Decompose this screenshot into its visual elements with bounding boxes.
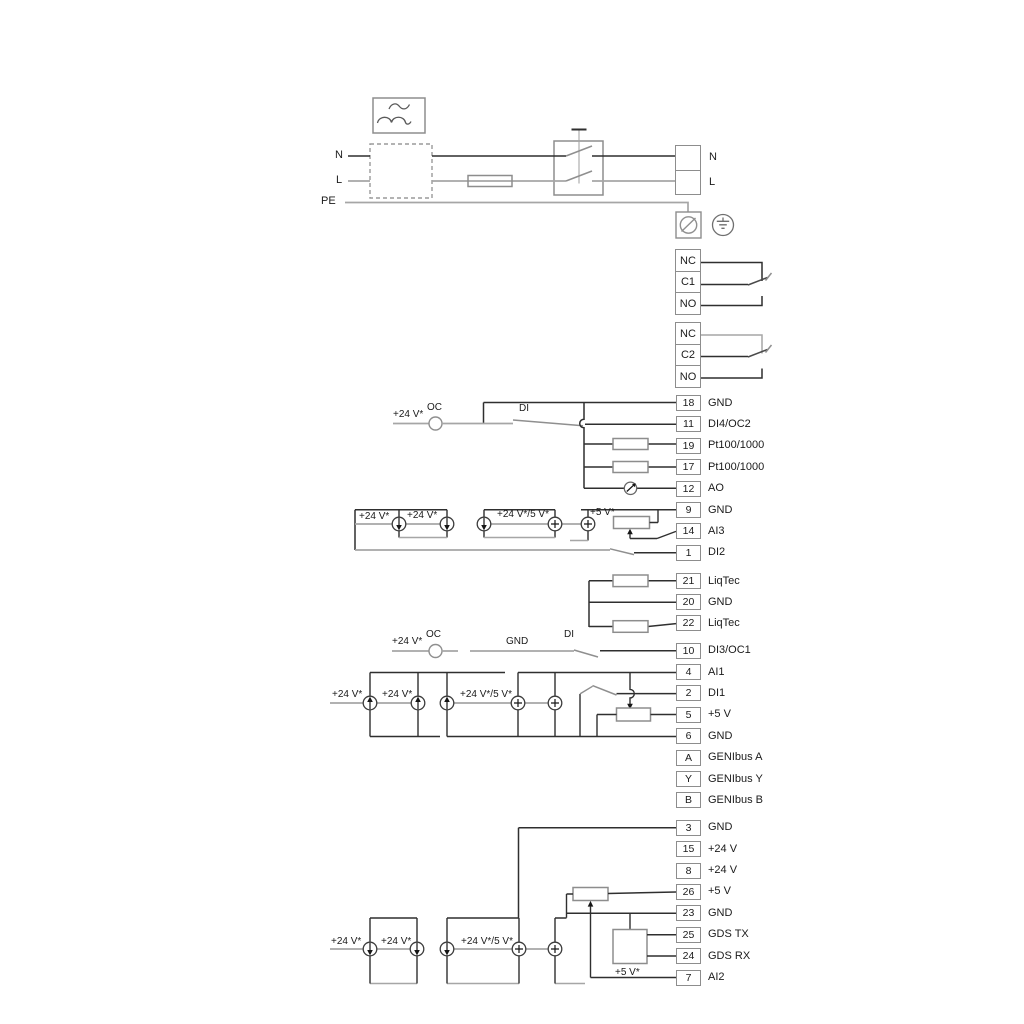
mains-terminal-box	[675, 145, 701, 195]
oc-label: OC	[427, 402, 442, 413]
terminal-label-4: AI1	[708, 666, 725, 679]
terminal-label-18: GND	[708, 397, 732, 410]
terminal-cell-1: 1	[676, 545, 701, 561]
pot3-right	[608, 892, 676, 894]
relay1-cell-nc: NC	[675, 249, 701, 272]
di-label: DI	[564, 629, 574, 640]
dashed-filter-box	[370, 144, 432, 198]
v24-label: +24 V*	[381, 936, 411, 947]
terminal-label-2: DI1	[708, 687, 725, 700]
oc1-open-collector-icon	[429, 645, 442, 658]
liqtec21-sensor	[613, 575, 648, 587]
row3-verticals	[370, 918, 555, 984]
v24-5-label: +24 V*/5 V*	[460, 689, 512, 700]
v24-5-label: +24 V*/5 V*	[497, 509, 549, 520]
pt100-17-resistor	[613, 462, 648, 473]
relay2-cell-no: NO	[675, 365, 701, 388]
relay1-cell-no: NO	[675, 292, 701, 315]
terminal-cell-11: 11	[676, 416, 701, 432]
v5-label: +5 V*	[615, 967, 640, 978]
sensor-bus	[580, 403, 584, 489]
pot1-wiper-arrow	[627, 529, 633, 535]
earth-bars	[717, 218, 729, 229]
relay1-tick	[766, 273, 772, 281]
v24-label: +24 V*	[359, 511, 389, 522]
terminal-label-10: DI3/OC1	[708, 644, 751, 657]
terminal-cell-12: 12	[676, 481, 701, 497]
terminal-cell-8: 8	[676, 863, 701, 879]
terminal-label-12: AO	[708, 482, 724, 495]
pot2-left	[597, 715, 617, 737]
terminal-label-9: GND	[708, 504, 732, 517]
gnd-label: GND	[506, 636, 528, 647]
relay2-nc-wire	[701, 335, 762, 354]
terminal-label-22: LiqTec	[708, 617, 740, 630]
l-right-label: L	[709, 176, 715, 188]
pt100-19-resistor	[613, 439, 648, 450]
wave-box	[373, 98, 425, 133]
terminal-cell-5: 5	[676, 707, 701, 723]
liqtec-block	[589, 575, 676, 632]
sine-wave-icon	[389, 104, 410, 109]
terminal-cell-4: 4	[676, 664, 701, 680]
relay1-no-text: NO	[680, 298, 697, 310]
di1-switch-blade	[593, 686, 617, 695]
terminal-cell-2: 2	[676, 685, 701, 701]
sensor-row-ai2	[330, 828, 676, 984]
terminal-label-24: GDS RX	[708, 950, 750, 963]
terminal-cell-Y: Y	[676, 771, 701, 787]
terminal-cell-7: 7	[676, 970, 701, 986]
pot3-wiper-arrow	[588, 901, 594, 907]
v24-label: +24 V*	[382, 689, 412, 700]
terminal-label-19: Pt100/1000	[708, 439, 764, 452]
di4-switch-blade	[513, 420, 583, 426]
liqtec22-wires	[589, 624, 676, 627]
pe-left-label: PE	[321, 195, 336, 207]
wiring-diagram: N L PE N L NC C1 NO NC C2 NO 18 GND 11 D…	[0, 0, 1024, 1024]
v24-label: +24 V*	[392, 636, 422, 647]
relay1-cell-c1: C1	[675, 271, 701, 294]
terminal-cell-20: 20	[676, 594, 701, 610]
relay2-no-wire	[701, 369, 762, 379]
relay2-c2-text: C2	[681, 349, 695, 361]
v24-label: +24 V*	[407, 510, 437, 521]
di-label: DI	[519, 403, 529, 414]
terminal-cell-B: B	[676, 792, 701, 808]
v24-5-label: +24 V*/5 V*	[461, 936, 513, 947]
relay1-blade	[748, 278, 768, 286]
terminal-cell-23: 23	[676, 905, 701, 921]
n-right-label: N	[709, 151, 717, 163]
terminal-cell-15: 15	[676, 841, 701, 857]
relay1-no-wire	[701, 296, 762, 306]
pe-wire	[345, 203, 688, 213]
terminal-label-21: LiqTec	[708, 575, 740, 588]
potentiometer-ai3	[614, 517, 650, 529]
terminal-label-5: +5 V	[708, 708, 731, 721]
relay2-cell-nc: NC	[675, 322, 701, 345]
terminal-cell-18: 18	[676, 395, 701, 411]
terminal-label-6: GND	[708, 730, 732, 743]
gds-sensor-box	[613, 930, 647, 964]
terminal-cell-17: 17	[676, 459, 701, 475]
pot1-wiper-wire	[630, 531, 676, 538]
row2-verticals	[370, 673, 555, 737]
mains-box-divider	[676, 170, 700, 171]
terminal-cell-26: 26	[676, 884, 701, 900]
terminal-label-Y: GENIbus Y	[708, 773, 763, 786]
relay2-cell-c2: C2	[675, 344, 701, 367]
liqtec22-sensor	[613, 621, 648, 633]
terminal-cell-25: 25	[676, 927, 701, 943]
terminal-label-A: GENIbus A	[708, 751, 762, 764]
terminal-label-8: +24 V	[708, 864, 737, 877]
v24-label: +24 V*	[331, 936, 361, 947]
relay2-contacts	[701, 335, 772, 378]
terminal-label-7: AI2	[708, 971, 725, 984]
n-left-label: N	[335, 149, 343, 161]
terminal-label-14: AI3	[708, 525, 725, 538]
terminal-cell-21: 21	[676, 573, 701, 589]
terminal-cell-A: A	[676, 750, 701, 766]
v24-label: +24 V*	[393, 409, 423, 420]
di1-hinge	[580, 686, 593, 694]
terminal-cell-22: 22	[676, 615, 701, 631]
relay1-nc-wire	[701, 263, 762, 282]
terminal-label-26: +5 V	[708, 885, 731, 898]
terminal-cell-10: 10	[676, 643, 701, 659]
di4-pt100-ao-block	[393, 403, 676, 495]
di3-row	[392, 645, 676, 658]
terminal-cell-6: 6	[676, 728, 701, 744]
terminal-label-17: Pt100/1000	[708, 461, 764, 474]
di3-switch-blade	[574, 650, 598, 657]
terminal-label-25: GDS TX	[708, 928, 749, 941]
relay2-tick	[766, 345, 772, 353]
oc2-open-collector-icon	[429, 417, 442, 430]
gnd3-wire	[519, 828, 677, 918]
terminal-cell-14: 14	[676, 523, 701, 539]
gds-tx-rx-wires	[647, 935, 676, 956]
potentiometer-ai2	[573, 888, 608, 901]
di2-switch-blade	[610, 549, 634, 555]
pot2-wiper-drop	[630, 673, 634, 705]
terminal-cell-19: 19	[676, 438, 701, 454]
relay2-nc-text: NC	[680, 328, 696, 340]
terminal-label-15: +24 V	[708, 843, 737, 856]
terminal-label-3: GND	[708, 821, 732, 834]
terminal-label-1: DI2	[708, 546, 725, 559]
hump-wave-icon	[378, 117, 412, 124]
terminal-label-B: GENIbus B	[708, 794, 763, 807]
terminal-label-20: GND	[708, 596, 732, 609]
relay1-c1-text: C1	[681, 276, 695, 288]
v24-label: +24 V*	[332, 689, 362, 700]
relay2-no-text: NO	[680, 371, 697, 383]
pot1-right	[650, 510, 659, 523]
terminal-label-11: DI4/OC2	[708, 418, 751, 431]
sensor-row-ai1	[330, 673, 676, 737]
v5-label: +5 V*	[590, 507, 615, 518]
relay1-nc-text: NC	[680, 255, 696, 267]
terminal-cell-24: 24	[676, 948, 701, 964]
terminal-cell-9: 9	[676, 502, 701, 518]
oc-label: OC	[426, 629, 441, 640]
l-left-label: L	[336, 174, 342, 186]
potentiometer-ai1	[617, 708, 651, 721]
terminal-label-23: GND	[708, 907, 732, 920]
terminal-cell-3: 3	[676, 820, 701, 836]
relay2-blade	[748, 350, 768, 358]
relay1-contacts	[701, 263, 772, 306]
pot3-left	[567, 894, 574, 918]
